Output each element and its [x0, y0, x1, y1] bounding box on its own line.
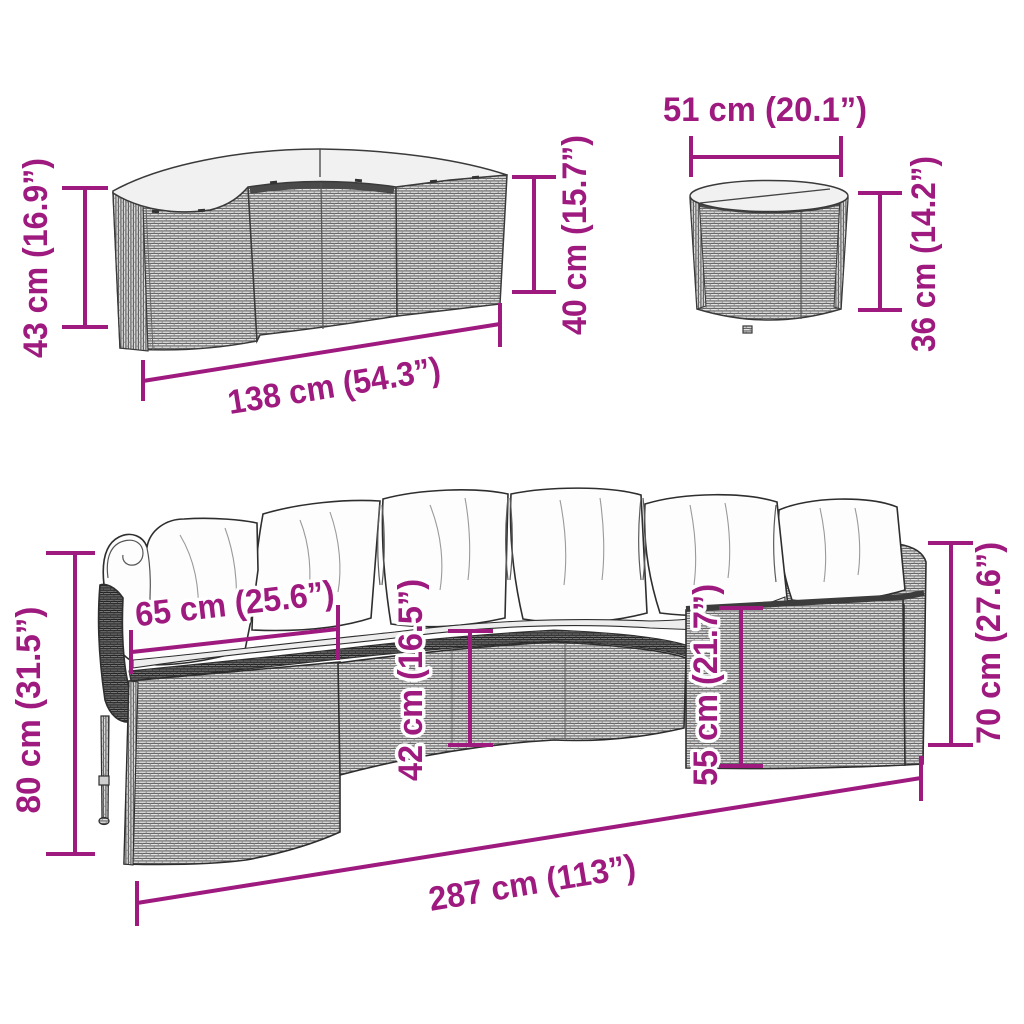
svg-text:51 cm (20.1”): 51 cm (20.1”): [663, 91, 867, 129]
svg-text:80 cm (31.5”): 80 cm (31.5”): [10, 607, 48, 814]
svg-text:36 cm (14.2”): 36 cm (14.2”): [905, 156, 943, 352]
svg-text:40 cm (15.7”): 40 cm (15.7”): [556, 135, 594, 335]
svg-text:42 cm (16.5”): 42 cm (16.5”): [392, 579, 430, 781]
svg-text:55 cm (21.7”): 55 cm (21.7”): [687, 584, 725, 786]
svg-text:70 cm (27.6”): 70 cm (27.6”): [970, 542, 1008, 744]
svg-text:43 cm (16.9”): 43 cm (16.9”): [17, 158, 55, 358]
